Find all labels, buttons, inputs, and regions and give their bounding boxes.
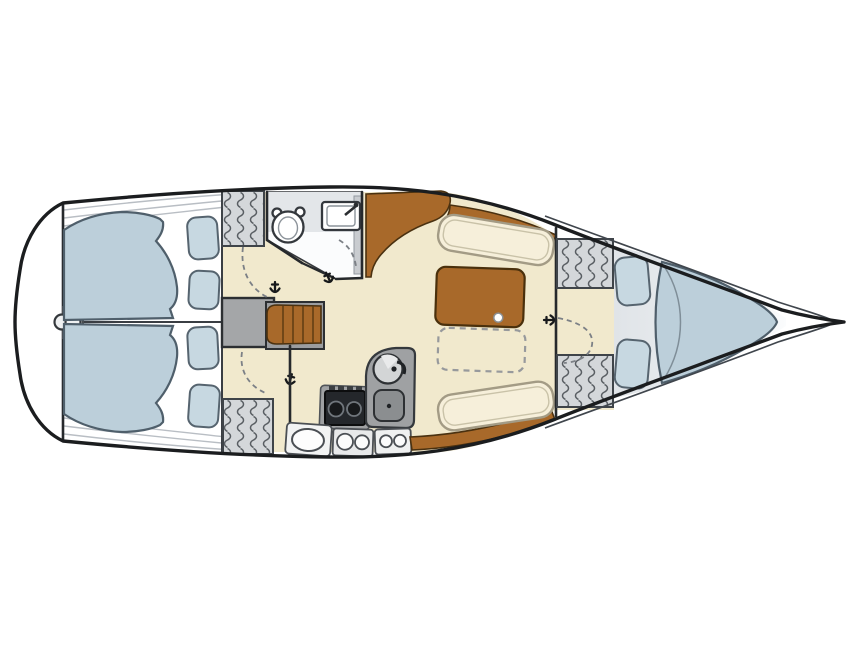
table-leaf-pin: [494, 313, 503, 322]
head-sink: [322, 202, 360, 230]
salon-table: [435, 266, 525, 327]
stove: [325, 386, 365, 425]
sailboat-floor-plan: [0, 0, 860, 645]
burner-icon: [329, 402, 344, 417]
burner-icon: [347, 402, 361, 416]
starboard-aft-berth-mattress: [64, 324, 177, 432]
port-aft-berth-mattress: [64, 212, 177, 320]
boat-floor-plan-canvas: [0, 0, 860, 645]
companionway-steps: [267, 305, 321, 344]
aft-hanging-locker-port: [222, 191, 264, 246]
icebox-basin: [374, 390, 404, 421]
aft-hanging-locker-starboard: [223, 399, 273, 454]
toilet: [273, 208, 305, 243]
forward-hanging-locker-starboard: [557, 239, 613, 288]
